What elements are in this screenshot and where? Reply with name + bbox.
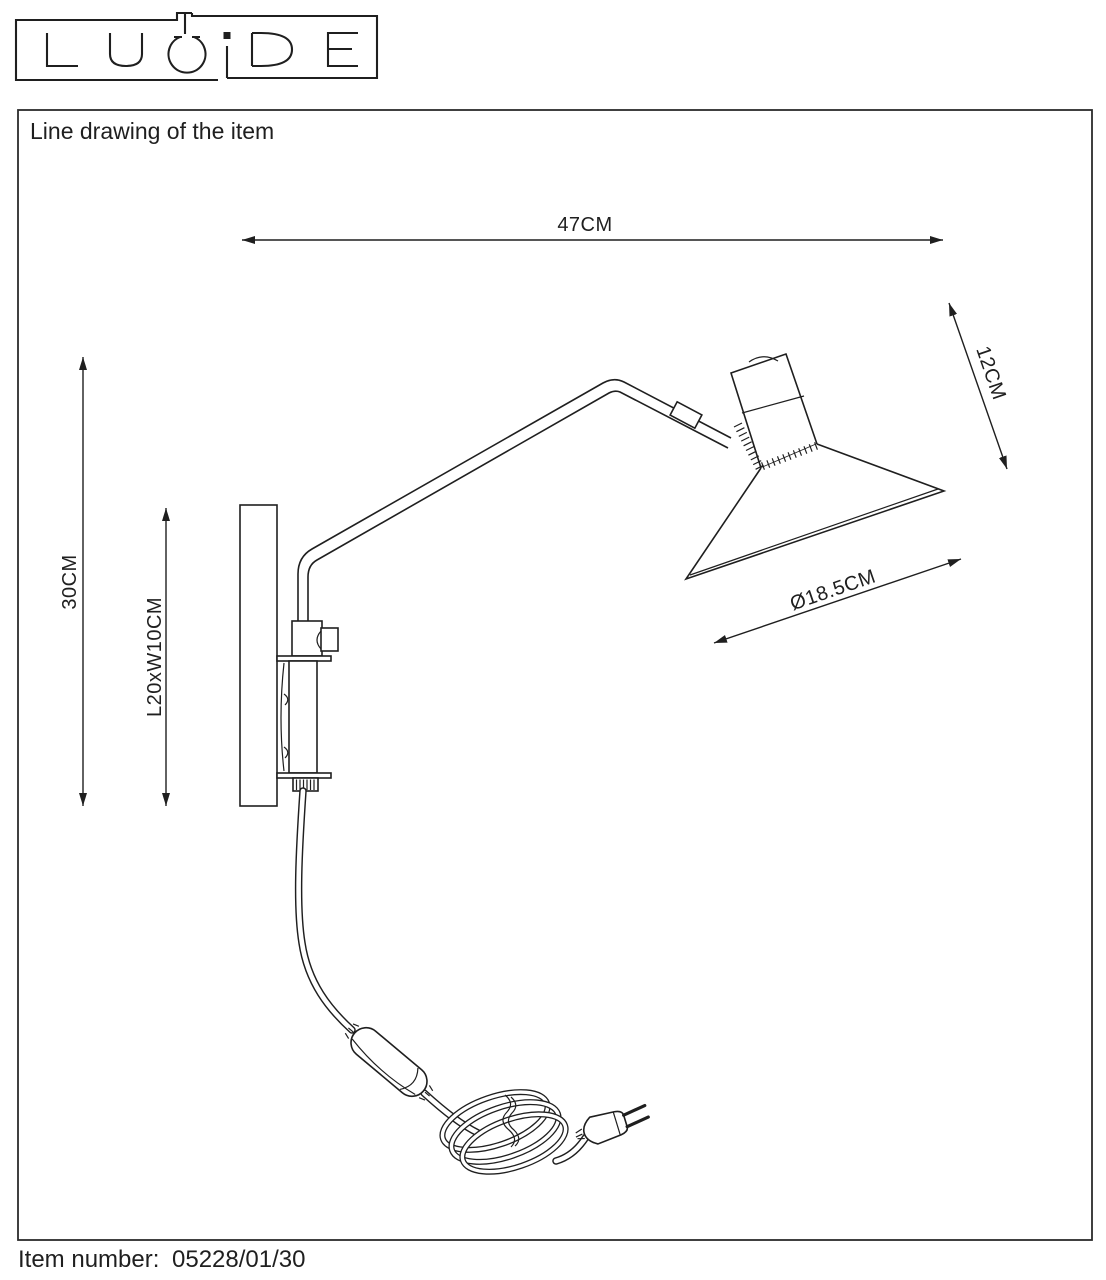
logo-letter-C	[169, 37, 206, 73]
drawing-title: Line drawing of the item	[30, 118, 274, 144]
dimension-label-backplate: L20xW10CM	[144, 597, 166, 717]
logo-letter-D	[252, 33, 292, 66]
product-sheet-page: Line drawing of the item	[0, 0, 1106, 1280]
drawing-border-box	[18, 110, 1092, 1240]
wall-lamp-drawing	[240, 354, 944, 1183]
bracket-edge	[281, 663, 284, 771]
lamp-shade	[686, 444, 944, 579]
dimension-label-shade-diameter: Ø18.5CM	[787, 565, 878, 615]
logo-letters	[47, 32, 358, 78]
wall-plate	[240, 505, 277, 806]
arm-collar	[670, 402, 702, 428]
logo-letter-E	[328, 33, 358, 66]
dimension-label-head-depth: 12CM	[971, 343, 1010, 403]
dimension-shade-diameter: Ø18.5CM	[714, 559, 961, 643]
item-number-value: 05228/01/30	[172, 1246, 305, 1273]
lamp-arm	[298, 380, 731, 622]
logo-letter-U	[110, 33, 142, 66]
dimension-head-depth: 12CM	[949, 303, 1010, 469]
pivot-knob	[321, 628, 338, 651]
dimension-label-total-width: 47CM	[557, 214, 612, 236]
logo-frame-right	[192, 13, 377, 78]
dimension-total-width: 47CM	[242, 214, 943, 240]
lucide-logo	[16, 13, 377, 80]
logo-letter-L	[47, 33, 78, 66]
mount-cylinder	[289, 661, 317, 773]
dimension-total-height: 30CM	[59, 357, 83, 806]
dimension-label-total-height: 30CM	[59, 554, 81, 609]
dimension-backplate: L20xW10CM	[144, 508, 166, 806]
item-number-label: Item number:	[18, 1246, 159, 1273]
cable-coil	[435, 1080, 586, 1183]
logo-letter-i	[224, 32, 231, 78]
mounting-bracket	[277, 621, 338, 791]
plug-prong	[626, 1117, 649, 1127]
plug-prong	[623, 1106, 646, 1116]
line-drawing-canvas: Line drawing of the item	[0, 0, 1106, 1280]
